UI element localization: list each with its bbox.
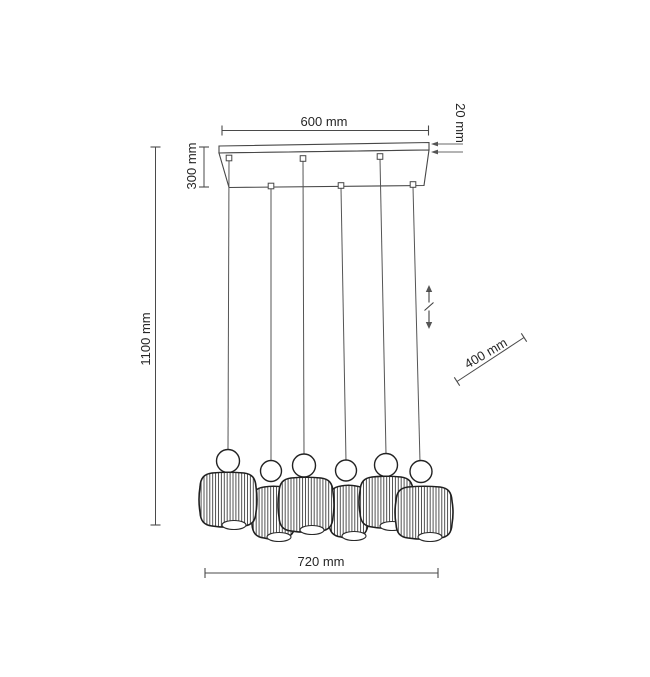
adjust-arrow-break bbox=[425, 303, 434, 311]
lamp-6-front bbox=[395, 461, 453, 542]
cord-attachment-point bbox=[338, 183, 344, 189]
dim-canopy-drop: 300 mm bbox=[184, 143, 209, 190]
dim-total-height-label: 1100 mm bbox=[138, 312, 153, 365]
suspension-cord bbox=[413, 187, 420, 462]
dim-canopy-drop-label: 300 mm bbox=[184, 143, 199, 190]
lamp-sphere bbox=[410, 461, 432, 483]
suspension-cord bbox=[380, 159, 386, 454]
lamp-base-ring bbox=[267, 533, 291, 542]
dim-canopy-width: 600 mm bbox=[222, 114, 429, 136]
dim-tick bbox=[454, 377, 459, 385]
adjustability-arrow bbox=[425, 285, 434, 329]
dim-tick bbox=[521, 333, 526, 341]
lamp-shade-ribs bbox=[278, 477, 334, 532]
lamp-3-front bbox=[278, 454, 334, 535]
dim-canopy-width-label: 600 mm bbox=[301, 114, 348, 129]
lamp-base-ring bbox=[222, 521, 246, 530]
dim-arrowhead bbox=[431, 142, 438, 147]
lamp-sphere bbox=[217, 450, 240, 473]
cord-attachment-point bbox=[226, 155, 232, 161]
lamp-sphere bbox=[293, 454, 316, 477]
cord-attachment-point bbox=[410, 182, 416, 188]
arrow-down-icon bbox=[426, 322, 432, 329]
dim-fixture-width-label: 720 mm bbox=[298, 554, 345, 569]
dimension-drawing-canvas: 600 mm 20 mm 300 mm 1100 mm 400 mm bbox=[0, 0, 650, 677]
lamp-sphere bbox=[261, 461, 282, 482]
cord-attachment-point bbox=[377, 154, 383, 160]
pendant-lamp-diagram: 600 mm 20 mm 300 mm 1100 mm 400 mm bbox=[0, 0, 650, 677]
dim-fixture-width: 720 mm bbox=[205, 554, 438, 578]
suspension-cord bbox=[303, 161, 304, 455]
dim-adjustment-range-label: 400 mm bbox=[462, 335, 510, 372]
cord-attachment-point bbox=[268, 183, 274, 189]
canopy-underside bbox=[219, 150, 429, 188]
lamp-sphere bbox=[336, 460, 357, 481]
dim-total-height: 1100 mm bbox=[138, 147, 161, 525]
lamp-sphere bbox=[375, 454, 398, 477]
dim-arrowhead bbox=[431, 150, 438, 155]
suspension-cords bbox=[228, 159, 420, 462]
lamp-shade-ribs bbox=[395, 486, 453, 539]
cord-attachment-point bbox=[300, 156, 306, 162]
lamp-1-front bbox=[199, 450, 257, 530]
dim-canopy-thickness: 20 mm bbox=[431, 103, 468, 154]
lamp-base-ring bbox=[418, 533, 442, 542]
lamp-shade-ribs bbox=[199, 472, 257, 527]
lamp-base-ring bbox=[300, 526, 324, 535]
dim-canopy-thickness-label: 20 mm bbox=[453, 103, 468, 143]
suspension-cord bbox=[228, 161, 229, 450]
dim-adjustment-range: 400 mm bbox=[454, 333, 526, 385]
suspension-cord bbox=[341, 188, 346, 461]
lamp-base-ring bbox=[342, 532, 366, 541]
arrow-up-icon bbox=[426, 285, 432, 292]
